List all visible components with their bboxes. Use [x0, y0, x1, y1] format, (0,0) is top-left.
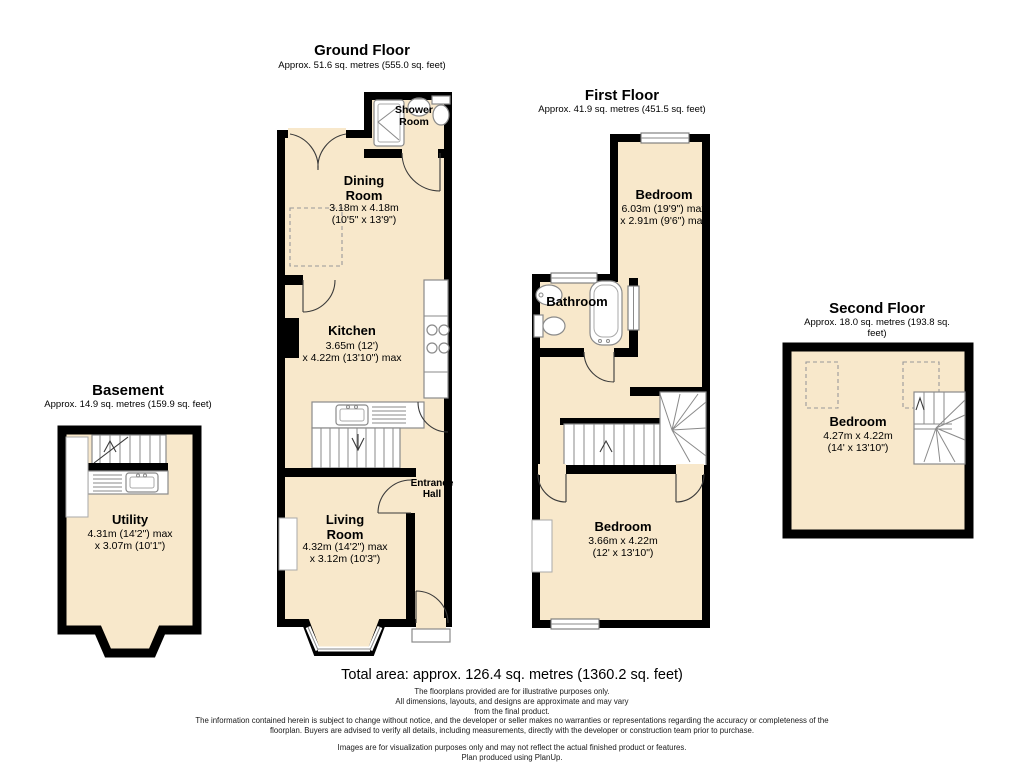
bedroom-second-dims: 4.27m x 4.22m (14' x 13'10"): [823, 431, 892, 455]
second-floor-winder-stairs-icon: [914, 392, 965, 464]
dining-kitchen-wall-stub: [277, 275, 303, 285]
bathroom-window-icon: [551, 273, 597, 283]
bedroom-top-dims: 6.03m (19'9") max x 2.91m (9'6") max: [620, 204, 707, 228]
kitchen-sink-counter-icon: [312, 402, 424, 428]
basement-sink-counter-icon: [88, 471, 168, 494]
ground-floor-area: Approx. 51.6 sq. metres (555.0 sq. feet): [278, 61, 445, 72]
total-area-text: Total area: approx. 126.4 sq. metres (13…: [341, 667, 683, 683]
dining-room-dims: 3.18m x 4.18m (10'5" x 13'9"): [329, 203, 398, 227]
ground-floor-title: Ground Floor: [314, 43, 410, 60]
landing-window-icon: [628, 286, 639, 330]
bedroom2-recess-icon: [532, 520, 552, 572]
entrance-hall-label: Entrance Hall: [411, 478, 454, 500]
first-floor-area: Approx. 41.9 sq. metres (451.5 sq. feet): [538, 105, 705, 116]
bathroom-label: Bathroom: [546, 295, 607, 310]
shower-room-label: Shower Room: [395, 105, 433, 129]
stairs-bottom-wall: [277, 468, 416, 477]
disclaimer-information: The information contained herein is subj…: [132, 716, 892, 736]
shower-toilet-icon: [432, 96, 450, 125]
bathroom-door-gap: [584, 346, 614, 358]
kitchen-label: Kitchen: [328, 324, 376, 339]
utility-room-dims: 4.31m (14'2") max x 3.07m (10'1"): [87, 529, 172, 553]
second-floor-area: Approx. 18.0 sq. metres (193.8 sq. feet): [804, 318, 951, 339]
french-door-gap: [288, 128, 346, 139]
first-floor-title: First Floor: [585, 88, 659, 105]
kitchen-dims: 3.65m (12') x 4.22m (13'10") max: [302, 341, 401, 365]
dining-room-label: Dining Room: [344, 174, 384, 203]
basement-title: Basement: [92, 383, 164, 400]
kitchen-counter-icon: [424, 280, 449, 398]
bedroom2-door-gap-left: [538, 464, 566, 475]
first-floor-winder-stairs-icon: [660, 392, 706, 466]
bathroom-toilet-icon: [534, 315, 565, 337]
living-room-label: Living Room: [326, 513, 364, 542]
bedroom-top-window-icon: [641, 133, 689, 143]
floorplan-page: Basement Approx. 14.9 sq. metres (159.9 …: [0, 0, 1024, 768]
utility-room-label: Utility: [112, 513, 148, 528]
front-door-threshold: [412, 629, 450, 642]
kitchen-chimney-breast: [277, 318, 299, 358]
ground-stairs-icon: [312, 428, 400, 468]
bedroom-top-label: Bedroom: [635, 188, 692, 203]
bedroom2-door-gap-right: [676, 464, 704, 475]
front-door-gap: [416, 618, 446, 629]
bedroom-bottom-label: Bedroom: [594, 520, 651, 535]
disclaimer-illustrative: The floorplans provided are for illustra…: [395, 687, 628, 717]
living-recess-icon: [279, 518, 297, 570]
first-floor-stairs-icon: [560, 418, 660, 468]
bedroom-bottom-dims: 3.66m x 4.22m (12' x 13'10"): [588, 536, 657, 560]
living-room-dims: 4.32m (14'2") max x 3.12m (10'3"): [302, 542, 387, 566]
second-floor-title: Second Floor: [829, 301, 925, 318]
basement-worktop-icon: [66, 437, 88, 517]
basement-area: Approx. 14.9 sq. metres (159.9 sq. feet): [44, 400, 211, 411]
shower-door-gap: [402, 148, 438, 159]
bath-icon: [590, 281, 622, 345]
disclaimer-images: Images are for visualization purposes on…: [338, 743, 687, 763]
basement-stairs-icon: [88, 435, 168, 471]
bedroom-second-label: Bedroom: [829, 415, 886, 430]
bedroom-bottom-window-icon: [551, 619, 599, 629]
